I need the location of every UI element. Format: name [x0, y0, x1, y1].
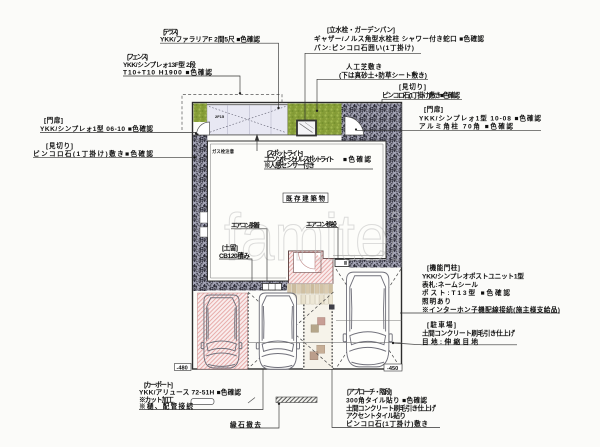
svg-text:YKK/ファラリアF 2間5尺 ■色確認: YKK/ファラリアF 2間5尺 ■色確認: [160, 35, 260, 44]
svg-text:YKK/シンプレォ1型 06-10 ■色確認: YKK/シンプレォ1型 06-10 ■色確認: [40, 124, 153, 133]
svg-text:[フェンス]: [フェンス]: [127, 53, 148, 61]
svg-text:土間コンクリート刷毛引き仕上げ: 土間コンクリート刷毛引き仕上げ: [422, 328, 515, 337]
svg-text:[見切り]: [見切り]: [46, 141, 73, 150]
svg-text:YKK/シンプレオポストユニット1型: YKK/シンプレオポストユニット1型: [422, 271, 524, 280]
svg-text:土間コンクリート刷毛引き仕上げ: 土間コンクリート刷毛引き仕上げ: [346, 403, 436, 412]
svg-text:※カット加工: ※カット加工: [139, 395, 174, 404]
svg-text:-450: -450: [387, 366, 398, 372]
svg-text:[アプローチ・階段]: [アプローチ・階段]: [347, 387, 392, 396]
svg-text:ギャザー/ノルス角型水栓柱 シャワー付き蛇口 ■色確認: ギャザー/ノルス角型水栓柱 シャワー付き蛇口 ■色確認: [314, 34, 484, 43]
svg-text:アクセントタイル貼り: アクセントタイル貼り: [346, 411, 406, 420]
svg-text:2F15: 2F15: [215, 114, 225, 119]
svg-text:※インターホン子機配線接続(施主様支給品): ※インターホン子機配線接続(施主様支給品): [422, 305, 560, 314]
svg-text:ポスト:T13型 ■色確認: ポスト:T13型 ■色確認: [422, 288, 510, 297]
svg-text:[駐車場]: [駐車場]: [427, 320, 456, 329]
svg-text:ピンコロ石(1丁掛け)敷き■色確認: ピンコロ石(1丁掛け)敷き■色確認: [382, 91, 460, 100]
svg-text:famitei: famitei: [224, 200, 402, 274]
svg-text:照明あり: 照明あり: [422, 297, 451, 306]
svg-text:[見切り]: [見切り]: [399, 82, 426, 91]
svg-text:縁石撤去: 縁石撤去: [230, 420, 261, 429]
svg-text:[立水栓・ガーデンパン]: [立水栓・ガーデンパン]: [327, 25, 395, 34]
svg-text:[土留]: [土留]: [222, 243, 238, 252]
svg-text:T10+T10 H1900 ■色確認: T10+T10 H1900 ■色確認: [123, 68, 212, 77]
svg-text:パン:ピンコロ石囲い(1丁掛け): パン:ピンコロ石囲い(1丁掛け): [314, 43, 414, 52]
svg-text:YKK/シンプレォ1型 10-08 ■色確認: YKK/シンプレォ1型 10-08 ■色確認: [419, 113, 541, 122]
svg-text:[門扉]: [門扉]: [44, 116, 63, 125]
svg-text:ピンコロ石(1丁掛け)敷き: ピンコロ石(1丁掛け)敷き: [346, 419, 428, 428]
svg-text:(下は真砂土+防草シート敷き): (下は真砂土+防草シート敷き): [339, 71, 427, 80]
svg-text:YKK/シンプレォ13F型 2段: YKK/シンプレォ13F型 2段: [123, 60, 196, 69]
svg-text:※人感センサー付き: ※人感センサー付き: [264, 160, 315, 169]
svg-text:目地:伸縮目地: 目地:伸縮目地: [422, 337, 478, 346]
svg-text:[テラス]: [テラス]: [163, 28, 179, 36]
svg-text:300角タイル貼り ■色確認: 300角タイル貼り ■色確認: [346, 395, 427, 404]
svg-text:[機能門柱]: [機能門柱]: [427, 263, 460, 272]
svg-text:[カーポート]: [カーポート]: [144, 380, 173, 389]
svg-text:[門扉]: [門扉]: [424, 105, 443, 114]
svg-text:人工芝敷き: 人工芝敷き: [346, 62, 382, 71]
svg-text:ピンコロ石(1丁掛け)敷き■色確認: ピンコロ石(1丁掛け)敷き■色確認: [33, 149, 153, 158]
svg-text:エアコン移設: エアコン移設: [306, 220, 338, 228]
svg-text:YKK/アリュース 72-51H ■色確認: YKK/アリュース 72-51H ■色確認: [139, 388, 241, 397]
svg-text:アルミ角柱 70角 ■色確認: アルミ角柱 70角 ■色確認: [419, 122, 513, 131]
svg-text:エアコン脱着: エアコン脱着: [231, 222, 260, 230]
svg-text:ガス栓注意: ガス栓注意: [212, 148, 235, 155]
svg-text:表札:ネームシール: 表札:ネームシール: [422, 280, 478, 289]
svg-text:CB120積み: CB120積み: [219, 251, 250, 260]
svg-text:-480: -480: [177, 365, 188, 371]
